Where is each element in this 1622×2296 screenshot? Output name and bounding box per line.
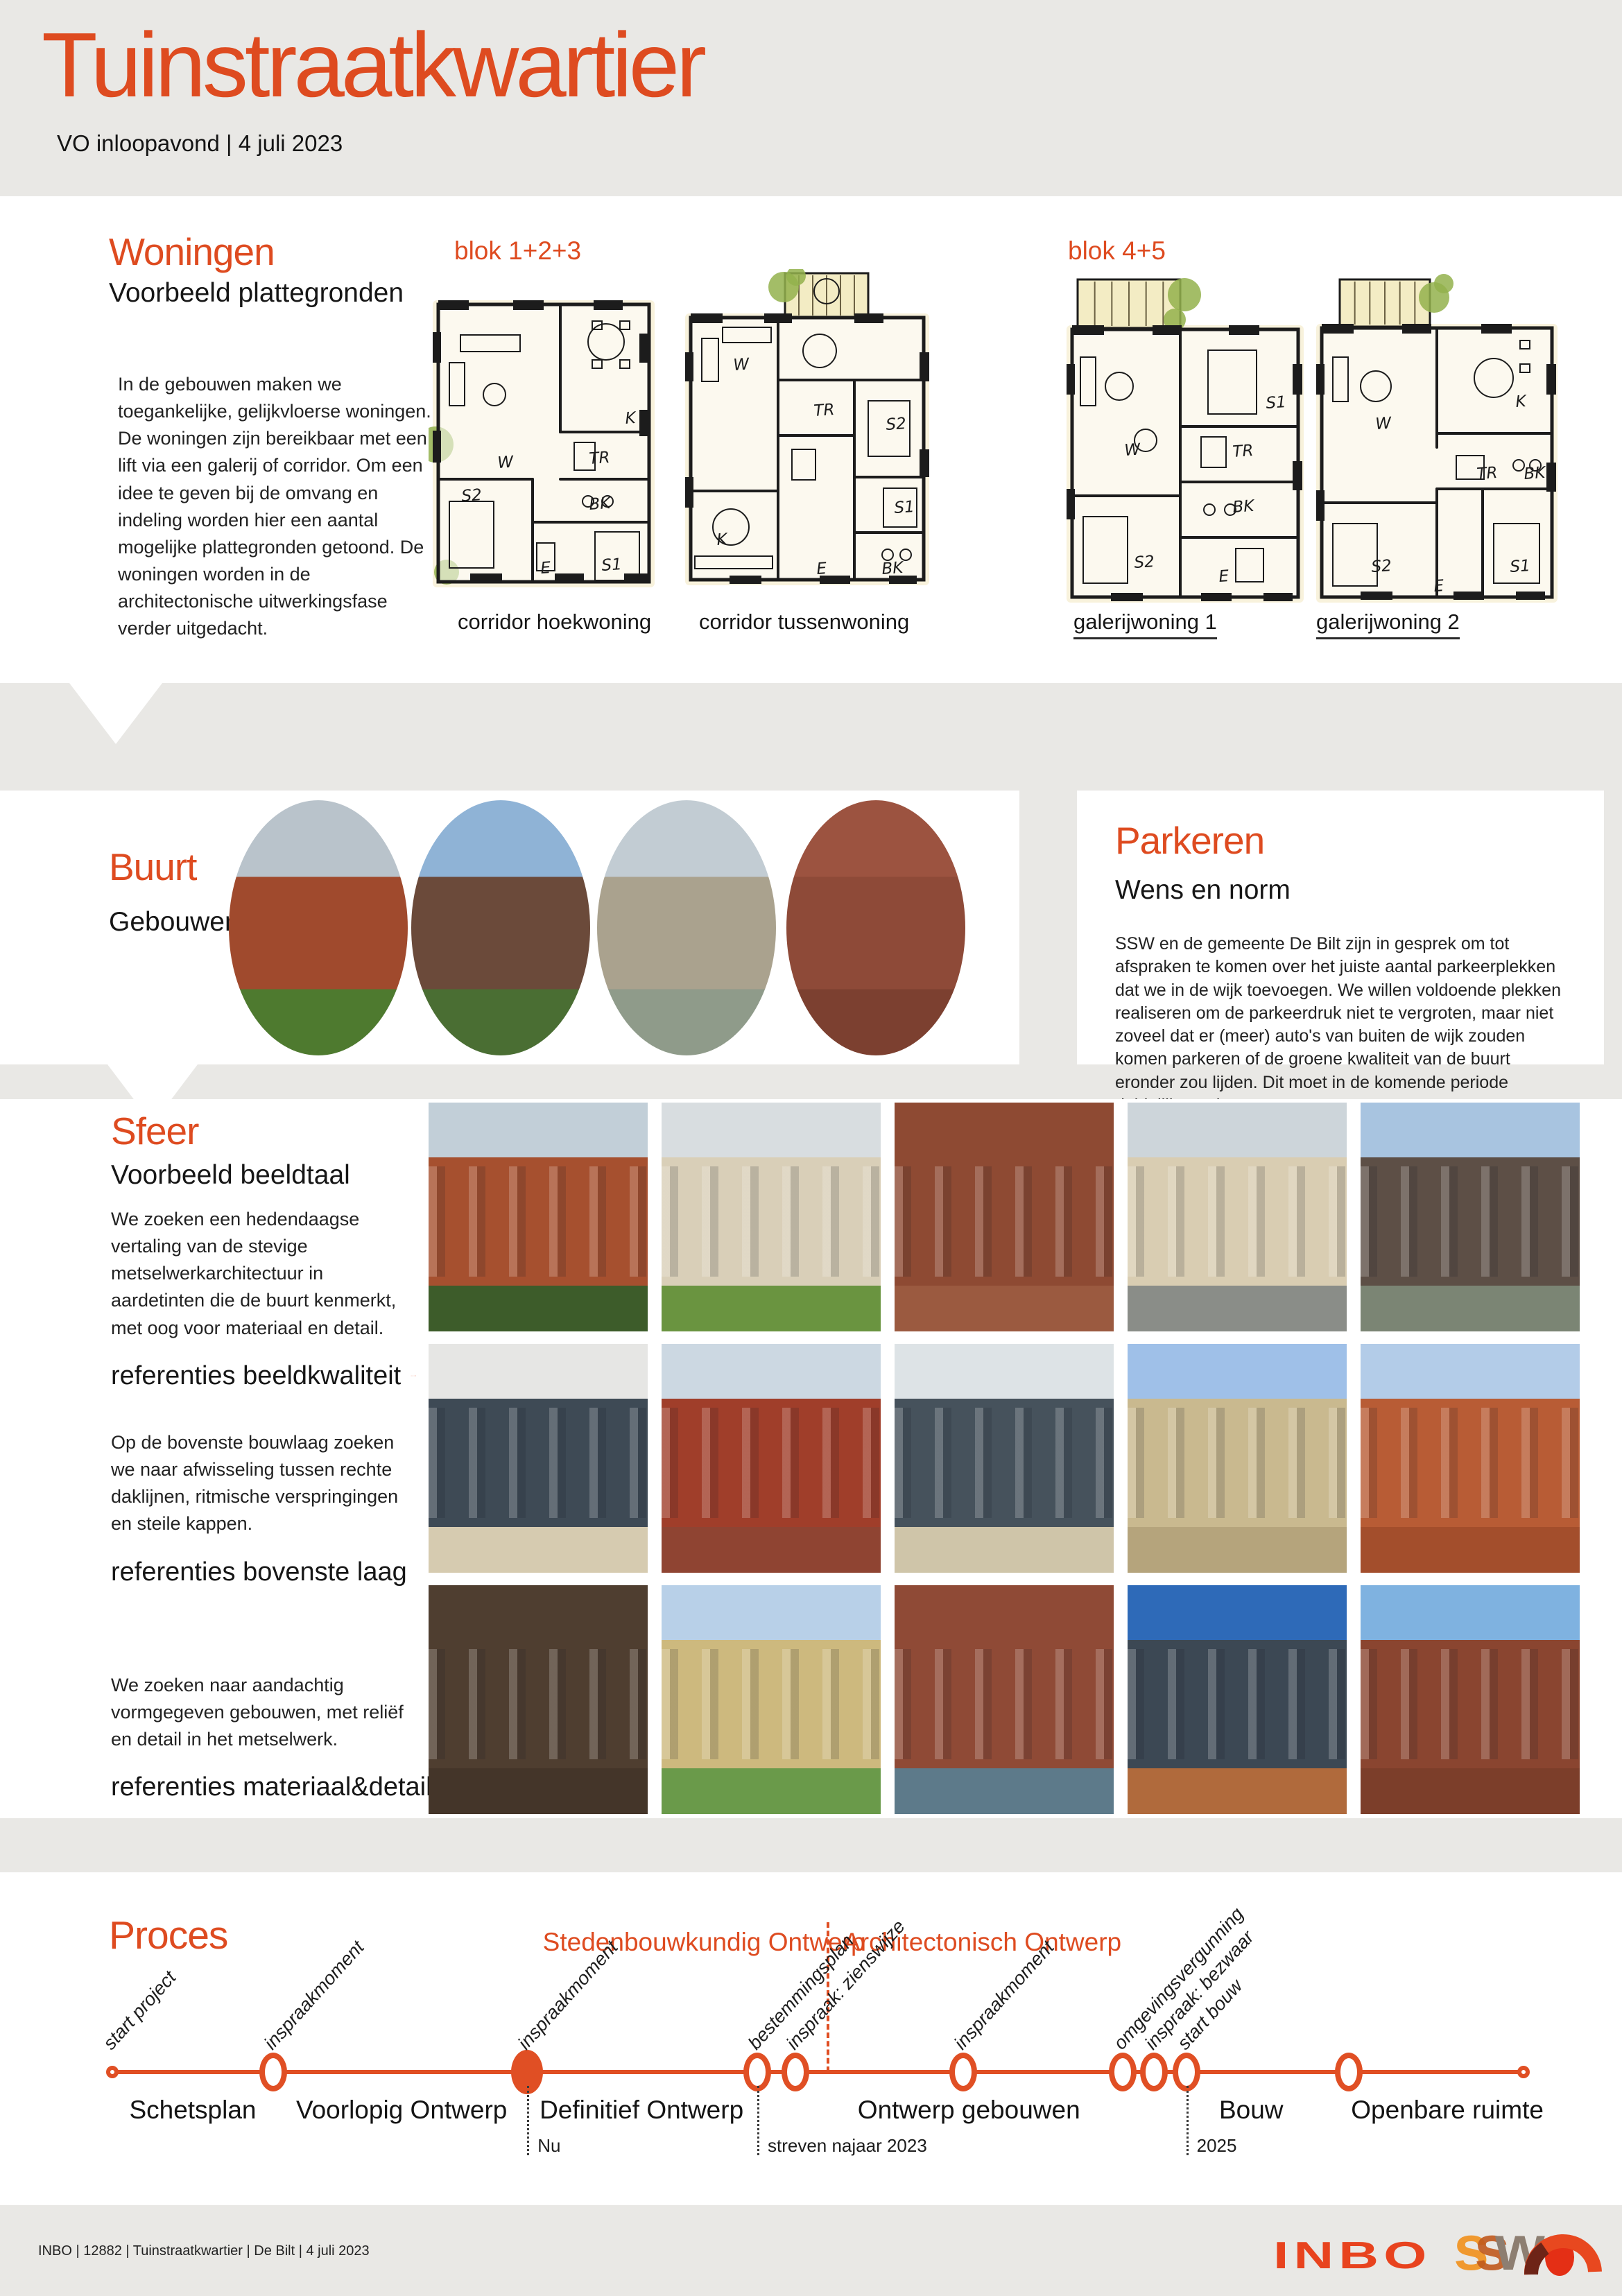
phase-openbare-ruimte: Openbare ruimte [1351,2096,1544,2125]
phase-schetsplan: Schetsplan [129,2096,256,2125]
phase-ontwerp-gebouwen: Ontwerp gebouwen [858,2096,1080,2125]
milestone-node [259,2053,287,2091]
svg-text:S2: S2 [1134,553,1155,572]
page-subtitle: VO inloopavond | 4 juli 2023 [57,130,343,157]
blok-45-label: blok 4+5 [1068,236,1166,266]
svg-text:BK: BK [589,494,613,514]
reference-photo-cream-building-grass [662,1103,881,1331]
process-timeline: Stedenbouwkundig Ontwerp Architectonisch… [112,1872,1524,2205]
milestone-node [106,2066,119,2078]
sfeer-body-3: We zoeken naar aandachtig vormgegeven ge… [111,1672,416,1753]
caption-row-2: referenties bovenste laag [111,1557,416,1587]
sfeer-block-2: Op de bovenste bouwlaag zoeken we naar a… [111,1429,416,1587]
buurt-photo-brick-row-houses-greenery [229,800,408,1055]
sfeer-body-2: Op de bovenste bouwlaag zoeken we naar a… [111,1429,416,1538]
reference-photo-beige-zinc-mansard [895,1344,1114,1573]
reference-photo-vertical-brick-ribs [1361,1585,1580,1814]
dotted-arrow-icon [411,1366,416,1386]
poster: Tuinstraatkwartier VO inloopavond | 4 ju… [0,0,1622,2296]
buurt-photo-house-solar-panels [597,800,776,1055]
svg-text:E: E [1218,567,1230,586]
parkeren-subtitle: Wens en norm [1115,875,1291,906]
buurt-photo-brick-chapel-facade [786,800,965,1055]
svg-text:W: W [1124,440,1142,460]
reference-photo-red-brick-tree [429,1103,648,1331]
time-marker-label: streven najaar 2023 [768,2135,927,2157]
parkeren-body: SSW en de gemeente De Bilt zijn in gespr… [1115,933,1566,1117]
reference-photo-yellow-brick-trees [662,1585,881,1814]
milestone-label: inspraakmoment [260,1937,369,2054]
caption-row-3: referenties materiaal&detail [111,1772,416,1802]
reference-photo-beige-dark-roof [1128,1103,1347,1331]
sfeer-body-1: We zoeken een hedendaagse vertaling van … [111,1206,416,1342]
milestone-node [1109,2053,1137,2091]
sfeer-block-3: We zoeken naar aandachtig vormgegeven ge… [111,1672,416,1802]
svg-text:S2: S2 [886,415,907,434]
sfeer-title: Sfeer [111,1109,416,1153]
reference-photo-dark-roof-blue-sky [1128,1585,1347,1814]
floorplan-corridor-tussenwoning: WKS2S1TRBKE [681,269,934,589]
page-title: Tuinstraatkwartier [42,12,703,117]
plan-label-corridor-hoekwoning: corridor hoekwoning [458,610,651,635]
plan-label-corridor-tussenwoning: corridor tussenwoning [699,610,909,635]
reference-photo-terracotta-red-roof [662,1344,881,1573]
time-marker: 2025 [1187,2086,1189,2155]
svg-text:E: E [816,560,828,578]
reference-photo-cream-setback-top [429,1344,648,1573]
footer-credits: INBO | 12882 | Tuinstraatkwartier | De B… [38,2243,370,2259]
section-proces: Proces Stedenbouwkundig Ontwerp Architec… [0,1872,1622,2205]
phase-voorlopig-ontwerp: Voorlopig Ontwerp [296,2096,507,2125]
buurt-subtitle: Gebouwen [109,907,240,938]
reference-photo-orange-brick-terrace [1361,1344,1580,1573]
card-parkeren: Parkeren Wens en norm SSW en de gemeente… [1077,791,1604,1064]
divider-band [0,1818,1622,1872]
woningen-body: In de gebouwen maken we toegankelijke, g… [118,371,433,642]
time-marker: streven najaar 2023 [757,2086,759,2155]
milestone-node [949,2053,977,2091]
sfeer-intro-block: Sfeer Voorbeeld beeldtaal We zoeken een … [111,1109,416,1391]
ssw-arc-icon [1521,2207,1605,2279]
blok-123-label: blok 1+2+3 [454,236,581,266]
svg-text:S1: S1 [1266,393,1287,413]
floorplan-galerijwoning-2: WKTRBKS2S1E [1312,274,1562,607]
svg-text:BK: BK [1524,464,1548,483]
svg-text:TR: TR [589,449,611,468]
svg-text:TR: TR [1232,442,1254,461]
reference-photo-brick-vertical-windows [895,1103,1114,1331]
svg-text:BK: BK [881,559,906,578]
svg-text:BK: BK [1232,497,1257,517]
svg-text:E: E [1433,577,1445,596]
milestone-node [782,2053,809,2091]
caption-row-1: referenties beeldkwaliteit [111,1361,416,1391]
svg-text:W: W [1375,414,1393,433]
reference-photo-dark-relief-brick [429,1585,648,1814]
inbo-logo: INBO [1273,2233,1431,2277]
footer: INBO | 12882 | Tuinstraatkwartier | De B… [0,2205,1622,2296]
woningen-subtitle: Voorbeeld plattegronden [109,278,404,309]
svg-text:E: E [540,559,552,578]
svg-text:S1: S1 [1510,557,1531,576]
plan-label-galerijwoning-1: galerijwoning 1 [1073,610,1217,639]
svg-text:S1: S1 [894,498,915,517]
svg-text:S2: S2 [1371,557,1392,576]
phase-bouw: Bouw [1219,2096,1284,2125]
caption-materiaal-detail: referenties materiaal&detail [111,1772,432,1802]
reference-photo-red-brick-grid [895,1585,1114,1814]
timeline-line [112,2070,1524,2074]
milestone-node [1140,2053,1168,2091]
card-buurt: Buurt Gebouwen [0,791,1019,1064]
parkeren-title: Parkeren [1115,818,1264,863]
sfeer-subtitle: Voorbeeld beeldtaal [111,1160,416,1191]
card-tail-icon [69,683,162,744]
svg-text:TR: TR [813,401,836,420]
milestone-node [1517,2066,1530,2078]
svg-text:W: W [497,453,515,472]
buurt-photo-brown-school-building [411,800,590,1055]
svg-text:TR: TR [1476,464,1499,483]
ssw-logo: s s w [1453,2211,1603,2287]
milestone-node [1335,2053,1363,2091]
phase-definitief-ontwerp: Definitief Ontwerp [540,2096,743,2125]
reference-photo-sand-brick-stepped [1128,1344,1347,1573]
milestone-label: start project [99,1967,180,2054]
svg-text:S2: S2 [461,486,483,506]
floorplan-corridor-hoekwoning: WKTRBKS2S1E [429,293,659,593]
time-marker-label: 2025 [1197,2135,1237,2157]
time-marker: Nu [527,2086,529,2155]
woningen-title: Woningen [109,230,275,274]
caption-beeldkwaliteit: referenties beeldkwaliteit [111,1361,401,1391]
section-sfeer: Sfeer Voorbeeld beeldtaal We zoeken een … [0,1099,1622,1818]
floorplan-galerijwoning-1: WS1TRBKS2E [1062,274,1309,607]
svg-text:S1: S1 [601,555,623,575]
time-marker-label: Nu [537,2135,560,2157]
buurt-title: Buurt [109,845,196,889]
svg-text:W: W [733,355,751,374]
section-woningen: Woningen Voorbeeld plattegronden In de g… [0,196,1622,683]
reference-photo-dark-bay-windows [1361,1103,1580,1331]
caption-bovenste-laag: referenties bovenste laag [111,1557,407,1587]
plan-label-galerijwoning-2: galerijwoning 2 [1316,610,1460,639]
